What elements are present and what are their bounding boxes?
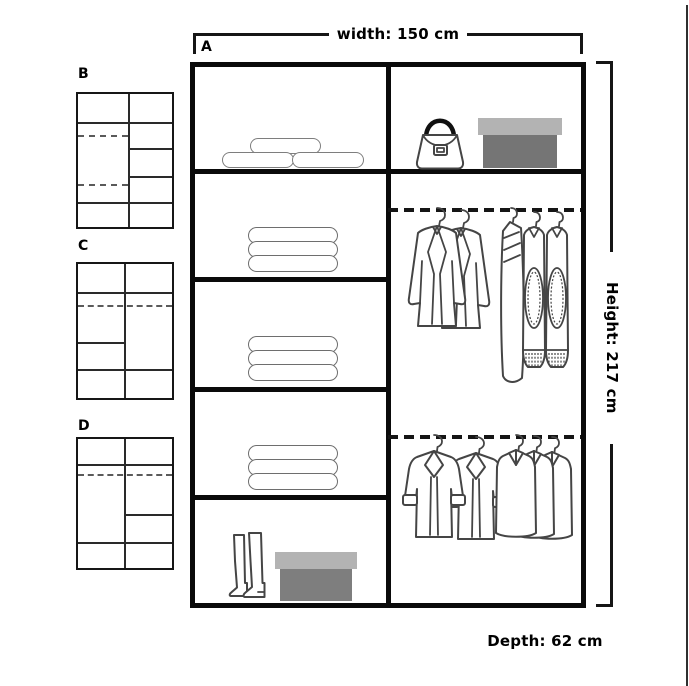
page-edge-line [686, 5, 688, 686]
shelf-line [78, 369, 172, 371]
center-divider [386, 67, 391, 603]
width-bracket-tick-right [580, 33, 583, 54]
variant-b-divider [128, 94, 130, 227]
variant-b-layout [76, 92, 174, 229]
height-dimension-label: Height: 217 cm [603, 252, 621, 444]
folded-clothes-icon [248, 445, 338, 490]
shelf-line [78, 202, 172, 204]
shelf-line [78, 292, 172, 294]
main-wardrobe-label: A [201, 39, 212, 55]
shirts-on-hangers-icon [492, 433, 576, 545]
wardrobe-dimension-diagram: width: 150 cm A Height: 217 cm Depth: 62… [0, 0, 689, 686]
folded-clothes-icon [248, 336, 338, 381]
variant-d-layout [76, 437, 174, 570]
height-bracket-line-top [610, 61, 613, 252]
shoe-box-body [280, 569, 352, 601]
folded-clothes-icon [248, 227, 338, 272]
rail-line [78, 184, 128, 186]
variant-c-label: C [78, 238, 88, 254]
width-bracket-line-left [193, 33, 329, 36]
storage-box-lid [478, 118, 562, 135]
variant-c-layout [76, 262, 174, 400]
main-wardrobe-outline [190, 62, 586, 608]
rail-line [78, 305, 172, 307]
shelf-line [78, 122, 172, 124]
rail-line [78, 474, 172, 476]
width-bracket-tick-left [193, 33, 196, 54]
boots-icon [228, 531, 272, 601]
shoe-box-lid [275, 552, 357, 569]
shelf-divider [195, 387, 388, 392]
variant-d-label: D [78, 418, 90, 434]
shelf-divider [195, 277, 388, 282]
height-bracket-line-bottom [610, 444, 613, 607]
shelf-line [128, 176, 172, 178]
width-dimension-label: width: 150 cm [329, 25, 467, 43]
shelf-line [128, 148, 172, 150]
width-bracket-line-right [467, 33, 583, 36]
variant-c-divider [124, 264, 126, 398]
pillow-icon [222, 152, 294, 168]
storage-box-body [483, 135, 557, 168]
shelf-line [78, 342, 124, 344]
jackets-on-hangers-icon [407, 206, 491, 340]
rail-line [78, 135, 128, 137]
sweaters-on-hangers-icon [498, 206, 570, 388]
variant-b-label: B [78, 66, 89, 82]
pillow-icon [292, 152, 364, 168]
handbag-icon [413, 108, 467, 170]
shelf-line [78, 542, 172, 544]
variant-d-divider [124, 439, 126, 568]
shelf-line [124, 514, 172, 516]
shelf-divider [195, 169, 388, 174]
shelf-divider [195, 495, 388, 500]
depth-dimension-label: Depth: 62 cm [475, 632, 615, 650]
shelf-line [78, 464, 172, 466]
